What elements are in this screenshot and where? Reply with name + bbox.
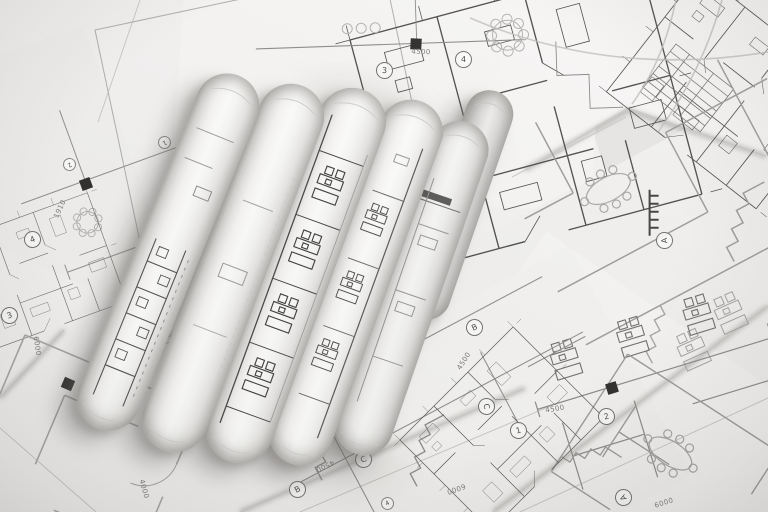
- axis-marker-label: 1: [515, 426, 522, 435]
- axis-marker-label: 3: [6, 311, 14, 320]
- axis-marker-label: 3: [382, 66, 387, 74]
- axis-marker-label: A: [660, 237, 668, 243]
- axis-marker-label: B: [293, 485, 302, 495]
- axis-marker-label: 4: [384, 500, 390, 507]
- axis-marker-label: C: [482, 403, 491, 410]
- axis-marker-label: 4: [461, 55, 466, 63]
- axis-marker-label: B: [470, 323, 478, 333]
- dimension-label: 4500: [411, 48, 431, 57]
- axis-marker-label: A: [619, 493, 629, 502]
- axis-marker-label: 4: [29, 235, 37, 244]
- axis-marker-label: 1: [161, 139, 167, 146]
- axis-marker-label: 2: [603, 412, 610, 421]
- axis-marker-label: 2: [66, 161, 72, 168]
- blueprint-photo: 3 4 4 3 2 1 A B C 1 C B 1 2 A 4 8 B 6 45…: [0, 0, 768, 512]
